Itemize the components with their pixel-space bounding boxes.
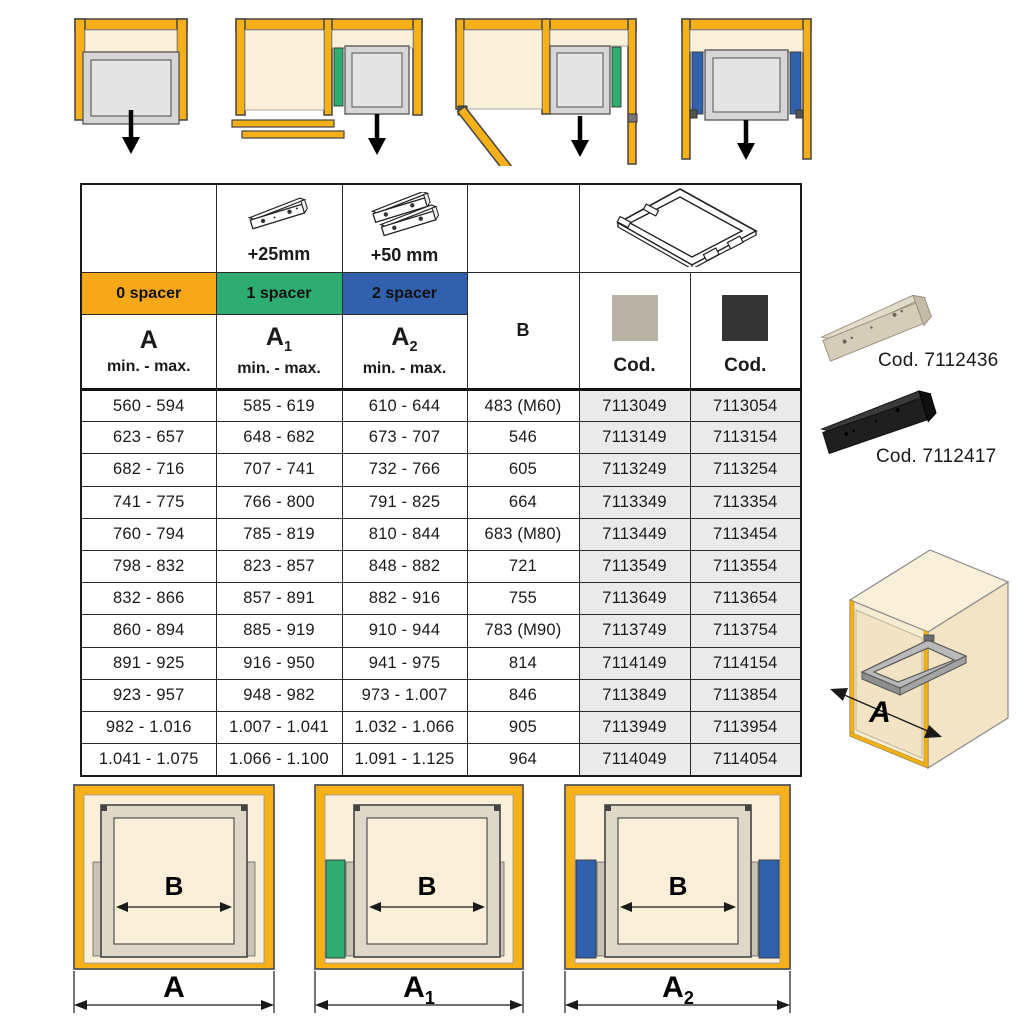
catalog-page: +25mm [0, 0, 1024, 1024]
table-row: 560 - 594 585 - 619 610 - 644 483 (M60) … [81, 390, 801, 422]
header-empty-b [467, 184, 579, 273]
cell-cod-grey: 7113749 [579, 615, 690, 647]
cell-a2-range: 791 - 825 [342, 486, 467, 518]
diagram-top-2spacer: B A2 [563, 783, 798, 1019]
cell-a1-range: 585 - 619 [216, 390, 342, 422]
cell-b-value: 755 [467, 583, 579, 615]
table-row: 798 - 832 823 - 857 848 - 882 721 711354… [81, 550, 801, 582]
dimension-a: A [74, 971, 274, 1013]
cell-a2-range: 973 - 1.007 [342, 679, 467, 711]
arrow-down-icon [571, 116, 589, 157]
cell-a1-range: 707 - 741 [216, 454, 342, 486]
cell-a-range: 1.041 - 1.075 [81, 744, 216, 776]
col-header-cod-grey: Cod. [579, 273, 690, 390]
arrow-down-icon [737, 120, 755, 160]
diagram-cabinet-front-door [450, 14, 642, 166]
dim-label-a2: A2 [662, 971, 694, 1008]
table-body: 560 - 594 585 - 619 610 - 644 483 (M60) … [81, 390, 801, 776]
cell-cod-grey: 7113349 [579, 486, 690, 518]
cell-cod-grey: 7113649 [579, 583, 690, 615]
cell-cod-grey: 7113149 [579, 422, 690, 454]
header-spacer50: +50 mm [342, 184, 467, 273]
grey-swatch [612, 295, 658, 341]
cell-b-value: 721 [467, 550, 579, 582]
cell-cod-dark: 7114154 [690, 647, 801, 679]
cell-a2-range: 810 - 844 [342, 518, 467, 550]
cell-cod-dark: 7113054 [690, 390, 801, 422]
col-header-a2: A2 min. - max. [342, 315, 467, 390]
col-header-a1: A1 min. - max. [216, 315, 342, 390]
dimension-a1: A1 [315, 971, 523, 1013]
dim-label-b: B [418, 871, 437, 901]
band-2-spacer: 2 spacer [342, 273, 467, 315]
diagram-top-1spacer: B A1 [313, 783, 531, 1019]
cell-cod-grey: 7114149 [579, 647, 690, 679]
col-header-b: B [467, 273, 579, 390]
cell-cod-grey: 7113849 [579, 679, 690, 711]
cell-b-value: 483 (M60) [467, 390, 579, 422]
dim-label-b: B [669, 871, 688, 901]
header-frame-image [579, 184, 801, 273]
dark-swatch [722, 295, 768, 341]
cell-a-range: 560 - 594 [81, 390, 216, 422]
spec-table: +25mm [80, 183, 802, 777]
cell-cod-grey: 7113249 [579, 454, 690, 486]
cell-a2-range: 610 - 644 [342, 390, 467, 422]
table-row: 623 - 657 648 - 682 673 - 707 546 711314… [81, 422, 801, 454]
table-row: 860 - 894 885 - 919 910 - 944 783 (M90) … [81, 615, 801, 647]
cell-a2-range: 1.032 - 1.066 [342, 711, 467, 743]
cell-a-range: 623 - 657 [81, 422, 216, 454]
cell-a1-range: 785 - 819 [216, 518, 342, 550]
cell-a1-range: 823 - 857 [216, 550, 342, 582]
header-spacer25: +25mm [216, 184, 342, 273]
table-row: 891 - 925 916 - 950 941 - 975 814 711414… [81, 647, 801, 679]
cell-cod-grey: 7114049 [579, 744, 690, 776]
cell-a-range: 923 - 957 [81, 679, 216, 711]
spacer-bars-icon [357, 192, 453, 238]
spacer-bar-icon [240, 193, 318, 237]
spec-table-wrap: +25mm [80, 183, 802, 777]
cell-a1-range: 916 - 950 [216, 647, 342, 679]
cell-b-value: 964 [467, 744, 579, 776]
cell-b-value: 846 [467, 679, 579, 711]
cell-a-range: 760 - 794 [81, 518, 216, 550]
arrow-down-icon [368, 114, 386, 155]
cell-a1-range: 1.007 - 1.041 [216, 711, 342, 743]
diagram-cabinet-front-2spacer [678, 14, 815, 162]
table-row: 923 - 957 948 - 982 973 - 1.007 846 7113… [81, 679, 801, 711]
cabinet-3d-diagram: A [816, 522, 1020, 778]
pullout-frame-icon [608, 185, 772, 267]
cell-a1-range: 1.066 - 1.100 [216, 744, 342, 776]
table-row: 982 - 1.016 1.007 - 1.041 1.032 - 1.066 … [81, 711, 801, 743]
cell-a-range: 798 - 832 [81, 550, 216, 582]
dim-label-b: B [165, 871, 184, 901]
cell-cod-dark: 7113454 [690, 518, 801, 550]
cell-b-value: 814 [467, 647, 579, 679]
cell-b-value: 683 (M80) [467, 518, 579, 550]
cell-a-range: 682 - 716 [81, 454, 216, 486]
diagram-cabinet-front-1spacer [228, 14, 430, 158]
cell-cod-grey: 7113449 [579, 518, 690, 550]
cell-a1-range: 857 - 891 [216, 583, 342, 615]
cell-cod-dark: 7113254 [690, 454, 801, 486]
col-header-a: A min. - max. [81, 315, 216, 390]
cod-label: Cod. [580, 355, 690, 377]
cell-a2-range: 848 - 882 [342, 550, 467, 582]
header-empty-a [81, 184, 216, 273]
cell-a-range: 982 - 1.016 [81, 711, 216, 743]
cell-b-value: 905 [467, 711, 579, 743]
cell-cod-dark: 7114054 [690, 744, 801, 776]
cell-a1-range: 885 - 919 [216, 615, 342, 647]
cell-a-range: 832 - 866 [81, 583, 216, 615]
cell-a1-range: 948 - 982 [216, 679, 342, 711]
cell-a2-range: 882 - 916 [342, 583, 467, 615]
cell-a1-range: 766 - 800 [216, 486, 342, 518]
cell-b-value: 664 [467, 486, 579, 518]
cell-a2-range: 673 - 707 [342, 422, 467, 454]
diagram-cabinet-front-0spacer [73, 14, 195, 156]
dimension-a2: A2 [565, 971, 790, 1013]
open-door [458, 106, 522, 166]
cell-cod-grey: 7113949 [579, 711, 690, 743]
cell-cod-dark: 7113654 [690, 583, 801, 615]
cell-a2-range: 941 - 975 [342, 647, 467, 679]
col-header-cod-dark: Cod. [690, 273, 801, 390]
cell-a-range: 891 - 925 [81, 647, 216, 679]
table-row: 832 - 866 857 - 891 882 - 916 755 711364… [81, 583, 801, 615]
cell-cod-dark: 7113754 [690, 615, 801, 647]
cell-b-value: 783 (M90) [467, 615, 579, 647]
cell-a-range: 860 - 894 [81, 615, 216, 647]
spacer25-label: +25mm [217, 244, 342, 265]
cell-cod-dark: 7113854 [690, 679, 801, 711]
dim-label-a: A [163, 971, 185, 1004]
cell-cod-grey: 7113049 [579, 390, 690, 422]
table-row: 741 - 775 766 - 800 791 - 825 664 711334… [81, 486, 801, 518]
cell-a2-range: 910 - 944 [342, 615, 467, 647]
band-1-spacer: 1 spacer [216, 273, 342, 315]
code-label-black-spacer: Cod. 7112417 [876, 446, 996, 468]
dim-label-a1: A1 [403, 971, 435, 1008]
cell-b-value: 546 [467, 422, 579, 454]
diagram-top-0spacer: B A [72, 783, 284, 1019]
spacer50-label: +50 mm [343, 245, 467, 266]
cell-cod-dark: 7113154 [690, 422, 801, 454]
table-row: 760 - 794 785 - 819 810 - 844 683 (M80) … [81, 518, 801, 550]
cell-cod-grey: 7113549 [579, 550, 690, 582]
cell-cod-dark: 7113354 [690, 486, 801, 518]
cell-a2-range: 1.091 - 1.125 [342, 744, 467, 776]
code-label-beige-spacer: Cod. 7112436 [878, 350, 998, 372]
cod-label: Cod. [691, 355, 801, 377]
table-row: 682 - 716 707 - 741 732 - 766 605 711324… [81, 454, 801, 486]
dim-label-a-3d: A [868, 696, 891, 729]
cell-a-range: 741 - 775 [81, 486, 216, 518]
cell-cod-dark: 7113554 [690, 550, 801, 582]
cell-cod-dark: 7113954 [690, 711, 801, 743]
cell-b-value: 605 [467, 454, 579, 486]
cell-a1-range: 648 - 682 [216, 422, 342, 454]
cell-a2-range: 732 - 766 [342, 454, 467, 486]
band-0-spacer: 0 spacer [81, 273, 216, 315]
table-row: 1.041 - 1.075 1.066 - 1.100 1.091 - 1.12… [81, 744, 801, 776]
